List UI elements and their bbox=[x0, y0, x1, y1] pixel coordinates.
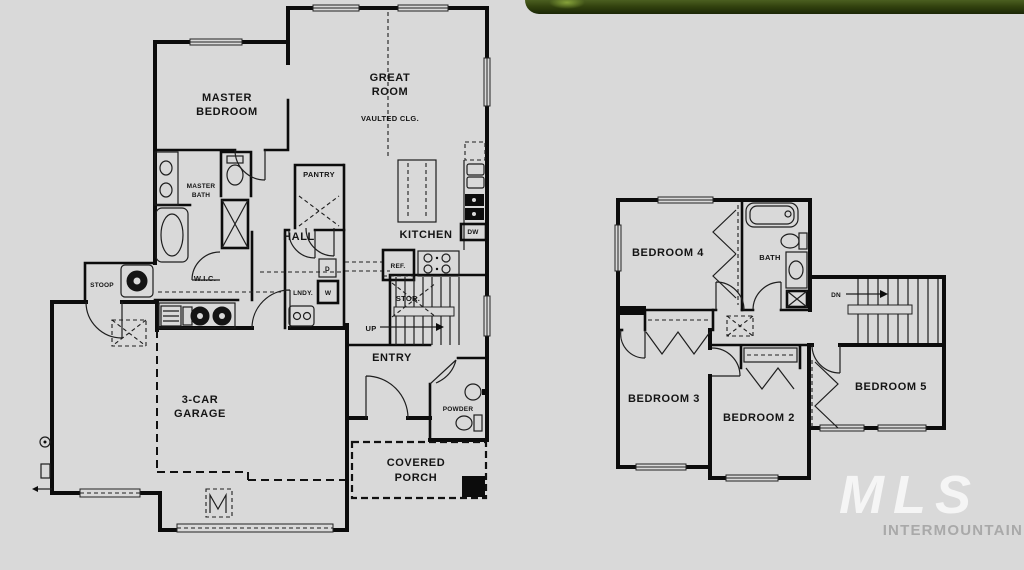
window-marker bbox=[615, 225, 621, 271]
appliance-label-dryer: D bbox=[325, 266, 330, 273]
porch-post bbox=[462, 476, 485, 497]
window-marker bbox=[636, 464, 686, 470]
bifold-closet-icon bbox=[713, 205, 738, 305]
room-label-stoop: STOOP bbox=[90, 282, 114, 289]
room-label-master-bath: BATH bbox=[192, 192, 210, 199]
room-label-bedroom4: BEDROOM 4 bbox=[632, 247, 704, 259]
label-dn: DN bbox=[831, 292, 841, 299]
door-arc-icon bbox=[621, 330, 645, 358]
tub-icon bbox=[746, 203, 798, 227]
toilet-icon bbox=[781, 233, 807, 249]
window-marker bbox=[878, 425, 926, 431]
room-label-wic: W.I.C. bbox=[194, 274, 216, 283]
room-label-laundry: LNDY. bbox=[293, 290, 313, 297]
floor-drain-icon bbox=[206, 489, 232, 517]
kitchen-island-icon bbox=[398, 160, 436, 222]
oven-icon bbox=[465, 194, 484, 220]
powder-sink-icon bbox=[465, 384, 486, 400]
door-arc-icon bbox=[712, 348, 740, 376]
window-marker bbox=[820, 425, 864, 431]
water-heater-icon bbox=[191, 307, 231, 325]
tub-icon bbox=[156, 208, 188, 262]
door-arc-icon bbox=[716, 282, 744, 310]
room-label-bedroom5: BEDROOM 5 bbox=[855, 381, 927, 393]
label-up: UP bbox=[365, 324, 376, 333]
room-label-bath: BATH bbox=[759, 253, 780, 262]
room-label-kitchen: KITCHEN bbox=[399, 229, 452, 241]
walls bbox=[52, 8, 487, 530]
room-label-garage: GARAGE bbox=[174, 408, 226, 420]
labels: BEDROOM 4 BATH DN BEDROOM 3 BEDROOM 2 BE… bbox=[628, 247, 927, 424]
window-marker bbox=[484, 296, 490, 336]
windows bbox=[615, 197, 926, 481]
floorplan-image: MASTER BEDROOM GREAT ROOM VAULTED CLG. M… bbox=[0, 0, 1024, 570]
vanity-sinks-icon bbox=[155, 152, 178, 205]
vanity-sink-icon bbox=[786, 252, 807, 288]
bifold-closet-icon bbox=[812, 360, 838, 428]
room-label-powder: POWDER bbox=[443, 406, 474, 413]
linen-closet-icon bbox=[787, 291, 807, 307]
window-marker bbox=[484, 58, 490, 106]
room-label-hall: HALL bbox=[283, 231, 315, 243]
floorplan-page: MASTER BEDROOM GREAT ROOM VAULTED CLG. M… bbox=[0, 0, 1024, 570]
appliance-label-ref: REF. bbox=[391, 263, 406, 270]
dn-arrow-icon bbox=[846, 290, 888, 298]
stairs-up-icon bbox=[392, 277, 459, 345]
window-marker bbox=[658, 197, 713, 203]
shower-icon bbox=[222, 200, 248, 248]
walls bbox=[616, 200, 944, 478]
powder-toilet-icon bbox=[456, 415, 482, 431]
window-marker bbox=[726, 475, 778, 481]
room-label-bedroom2: BEDROOM 2 bbox=[723, 412, 795, 424]
room-label-porch: COVERED bbox=[387, 457, 446, 469]
note-vaulted-ceiling: VAULTED CLG. bbox=[361, 114, 419, 123]
first-floor-plan: MASTER BEDROOM GREAT ROOM VAULTED CLG. M… bbox=[32, 5, 490, 532]
window-marker bbox=[398, 5, 448, 11]
attic-access-icon bbox=[112, 320, 146, 346]
door-arc-icon bbox=[86, 302, 122, 338]
label-storage: STOR. bbox=[396, 294, 420, 303]
room-label-porch: PORCH bbox=[395, 472, 438, 484]
garage-door-marker bbox=[177, 524, 333, 532]
room-label-master-bedroom: BEDROOM bbox=[196, 106, 258, 118]
bifold-closet-icon bbox=[646, 320, 710, 354]
door-arc-icon bbox=[366, 376, 408, 418]
door-arc-icon bbox=[430, 360, 456, 384]
room-label-entry: ENTRY bbox=[372, 352, 412, 364]
stairs-down-icon bbox=[848, 279, 938, 343]
room-label-great-room: ROOM bbox=[372, 86, 409, 98]
room-label-garage: 3-CAR bbox=[182, 394, 219, 406]
laundry-sink-icon bbox=[289, 306, 314, 326]
attic-access-icon bbox=[727, 316, 753, 336]
room-label-master-bedroom: MASTER bbox=[202, 92, 252, 104]
room-label-bedroom3: BEDROOM 3 bbox=[628, 393, 700, 405]
toilet-icon bbox=[227, 156, 243, 185]
room-label-master-bath: MASTER bbox=[187, 183, 216, 190]
stove-icon bbox=[418, 251, 459, 276]
exterior-meter-icon bbox=[32, 437, 52, 492]
bifold-closet-icon bbox=[744, 348, 797, 389]
room-label-pantry: PANTRY bbox=[303, 170, 335, 179]
appliance-label-washer: W bbox=[325, 290, 332, 297]
stoop-fixture-icon bbox=[121, 265, 153, 297]
door-arc-icon bbox=[753, 282, 781, 310]
room-label-great-room: GREAT bbox=[370, 72, 411, 84]
window-marker bbox=[190, 39, 242, 45]
second-floor-plan: BEDROOM 4 BATH DN BEDROOM 3 BEDROOM 2 BE… bbox=[615, 197, 944, 481]
appliance-label-dw: DW bbox=[467, 229, 479, 236]
window-marker bbox=[313, 5, 359, 11]
door-arc-icon bbox=[812, 345, 840, 373]
garage-door-marker bbox=[80, 489, 140, 497]
